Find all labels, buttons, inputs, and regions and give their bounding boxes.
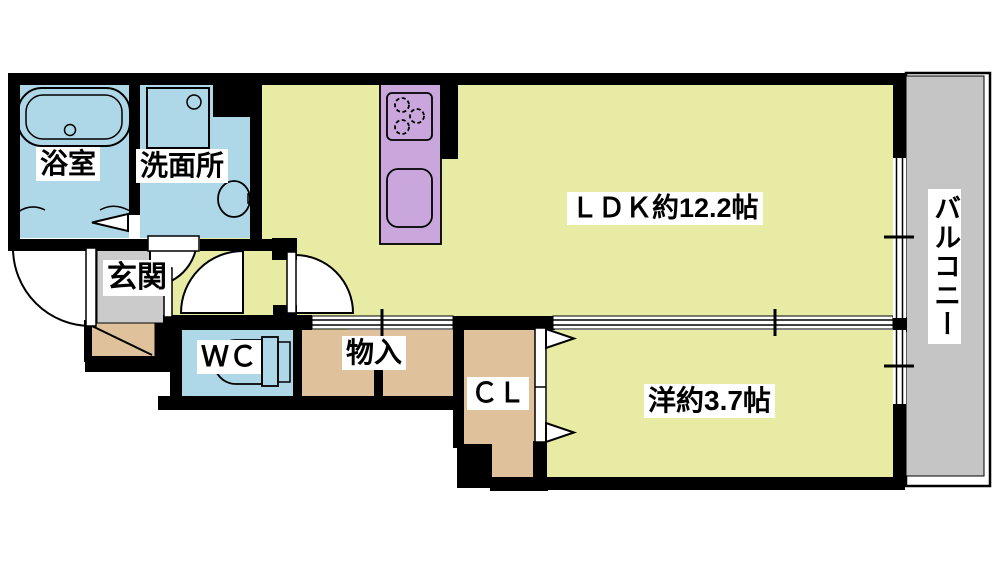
wc-label: ＷＣ bbox=[197, 340, 261, 374]
ldk-door-leaf bbox=[287, 252, 296, 313]
closet-label: ＣＬ bbox=[467, 377, 529, 410]
closet-floor-notch bbox=[490, 443, 535, 479]
floor-plan: 浴室 洗面所 ＬＤＫ約12.2帖 バルコニー 玄関 ＷＣ 物入 ＣＬ 洋約3.7… bbox=[0, 0, 1000, 562]
ldk-label: ＬＤＫ約12.2帖 bbox=[567, 192, 763, 225]
kitchen-counter bbox=[380, 84, 441, 244]
entrance-door-leaf bbox=[86, 248, 96, 326]
western-room-label: 洋約3.7帖 bbox=[644, 384, 775, 418]
bathroom-label: 浴室 bbox=[36, 147, 100, 181]
washroom-door-leaf bbox=[148, 236, 199, 251]
washroom-label: 洗面所 bbox=[136, 149, 228, 183]
storage-label: 物入 bbox=[342, 336, 406, 370]
entrance-label: 玄関 bbox=[103, 260, 171, 296]
balcony-label: バルコニー bbox=[928, 189, 961, 344]
entrance-door-arc bbox=[13, 248, 91, 326]
